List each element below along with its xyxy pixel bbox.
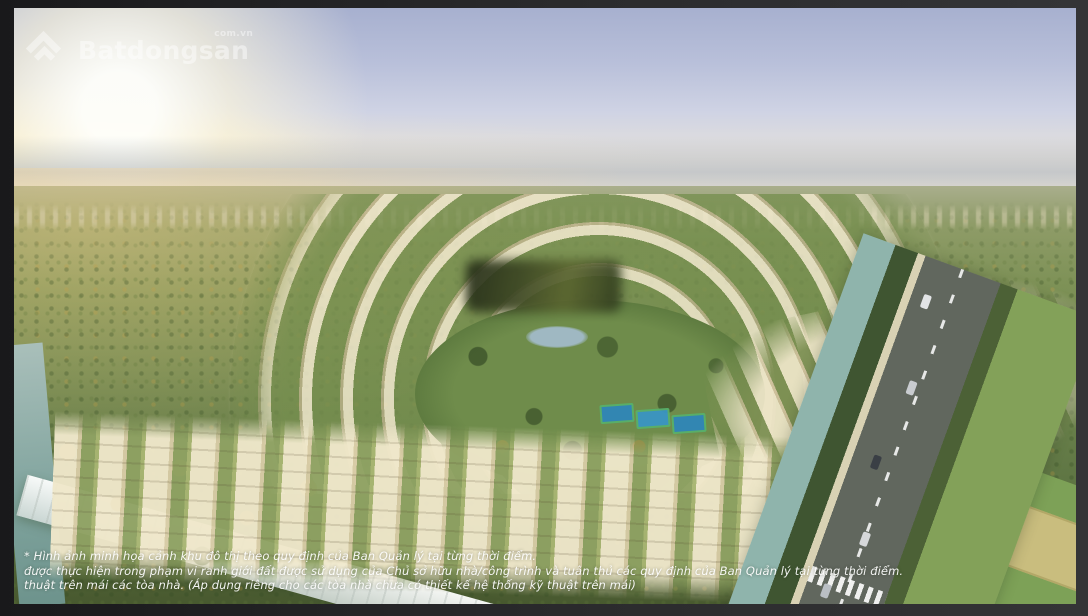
- disclaimer-line-2: được thực hiện trong phạm vi ranh giới đ…: [24, 564, 904, 579]
- photo-frame: Batdongsan com.vn * Hình ảnh minh họa cả…: [0, 0, 1088, 616]
- batdongsan-watermark: Batdongsan com.vn: [26, 28, 249, 72]
- blurred-patch: [466, 260, 621, 312]
- watermark-wordmark: Batdongsan com.vn: [78, 36, 249, 65]
- tennis-court: [599, 403, 634, 424]
- tennis-court: [671, 413, 706, 434]
- disclaimer-line-3: thuật trên mái các tòa nhà. (Áp dụng riê…: [24, 578, 904, 593]
- disclaimer-line-1: * Hình ảnh minh họa cảnh khu đô thị theo…: [24, 549, 904, 564]
- batdongsan-house-logo-icon: [26, 28, 70, 72]
- tennis-court: [635, 408, 670, 429]
- park-pond: [526, 326, 588, 348]
- legal-disclaimer: * Hình ảnh minh họa cảnh khu đô thị theo…: [24, 549, 904, 593]
- cars: [920, 294, 932, 310]
- watermark-brand-text: Batdongsan: [78, 36, 249, 65]
- aerial-render-photo: Batdongsan com.vn * Hình ảnh minh họa cả…: [14, 8, 1076, 604]
- watermark-domain-suffix: com.vn: [214, 29, 253, 39]
